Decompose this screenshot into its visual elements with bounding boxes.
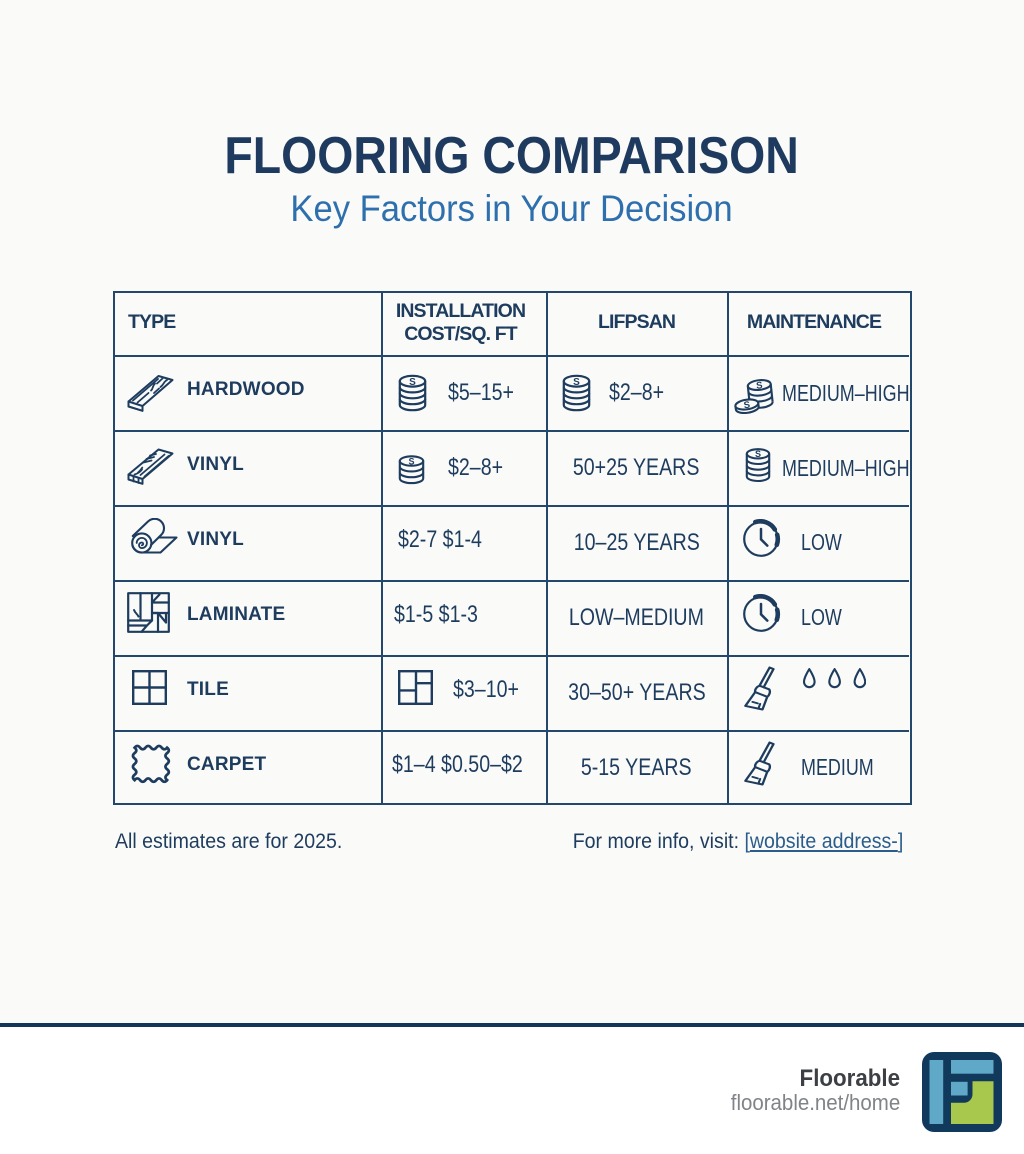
svg-text:S: S [755, 449, 761, 459]
svg-text:S: S [756, 380, 763, 392]
svg-text:S: S [573, 377, 580, 388]
svg-text:S: S [408, 456, 414, 466]
svg-text:S: S [409, 377, 416, 388]
